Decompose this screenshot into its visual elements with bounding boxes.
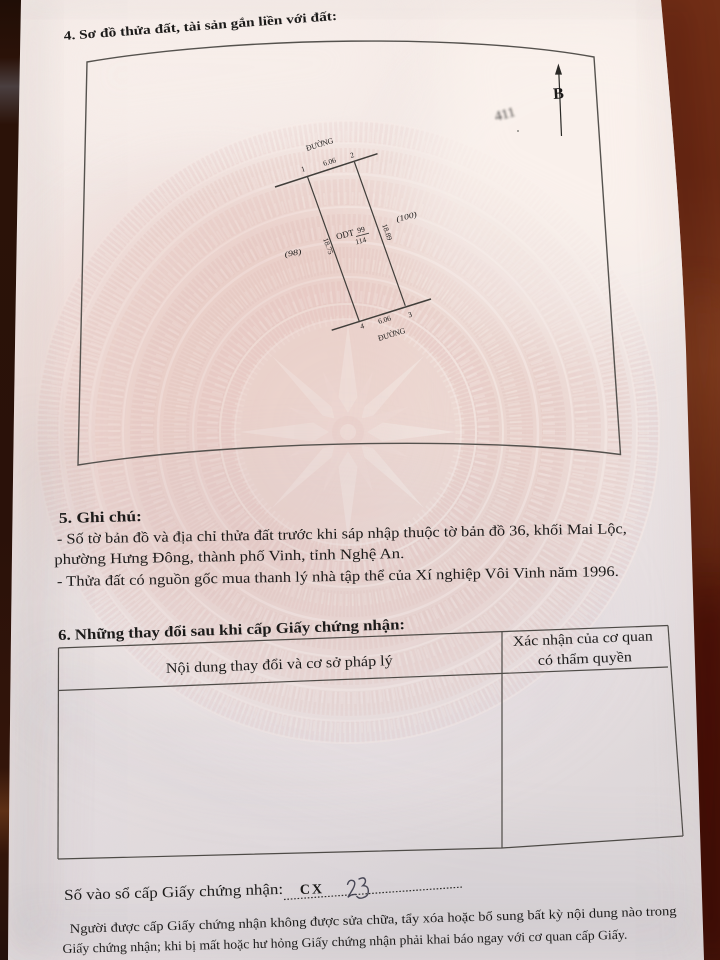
svg-text:CX: CX	[300, 882, 325, 898]
svg-text:B: B	[553, 85, 565, 103]
svg-text:5. Ghi chú:: 5. Ghi chú:	[59, 509, 142, 527]
